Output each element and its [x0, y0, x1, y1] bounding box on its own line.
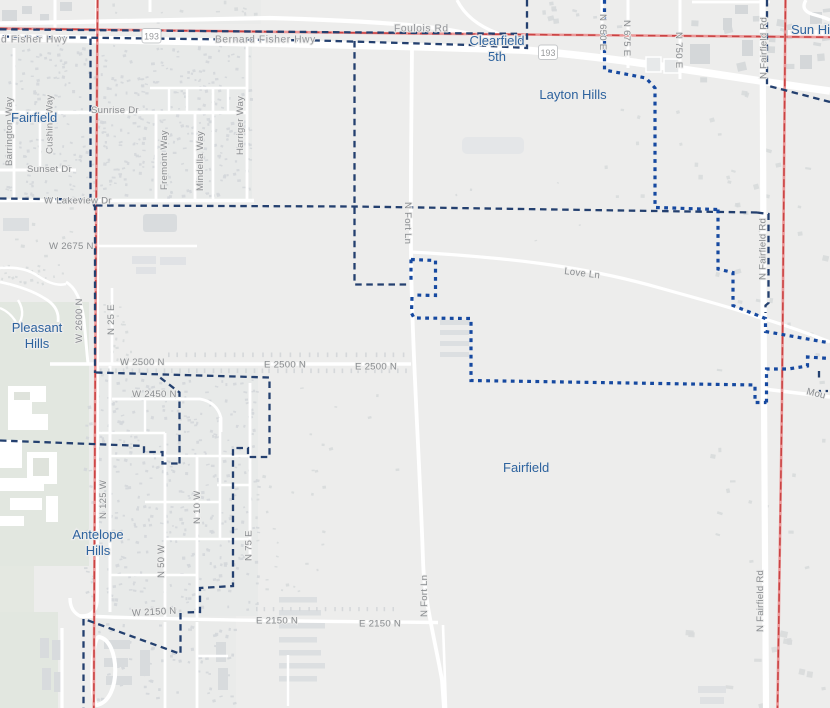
svg-text:N 75 E: N 75 E — [244, 530, 255, 561]
svg-text:Fairfield: Fairfield — [503, 460, 549, 475]
svg-text:Sunset Dr: Sunset Dr — [27, 164, 72, 175]
svg-text:Clearfield: Clearfield — [470, 33, 525, 48]
svg-text:Sunrise Dr: Sunrise Dr — [91, 105, 139, 116]
svg-text:Pleasant: Pleasant — [12, 320, 63, 335]
svg-text:N Fort Ln: N Fort Ln — [402, 202, 413, 244]
svg-text:N Fairfield Rd: N Fairfield Rd — [759, 17, 770, 79]
svg-text:W 2600 N: W 2600 N — [74, 298, 85, 343]
svg-text:Mindella Way: Mindella Way — [195, 131, 206, 191]
svg-text:Barrington Way: Barrington Way — [4, 97, 15, 166]
svg-text:Sun Hill: Sun Hill — [791, 22, 830, 37]
svg-text:E 2150 N: E 2150 N — [359, 619, 401, 630]
svg-text:W Lakeview Dr: W Lakeview Dr — [44, 196, 112, 207]
svg-text:N 10 W: N 10 W — [192, 490, 203, 524]
svg-text:N Fairfield Rd: N Fairfield Rd — [755, 570, 766, 632]
svg-text:Fairfield: Fairfield — [11, 110, 57, 125]
svg-text:Fremont Way: Fremont Way — [159, 130, 170, 190]
svg-text:W 2150 N: W 2150 N — [132, 606, 177, 619]
svg-text:N 25 E: N 25 E — [106, 304, 117, 335]
svg-text:d Fisher Hwy: d Fisher Hwy — [1, 35, 68, 46]
svg-text:Foulois Rd: Foulois Rd — [394, 24, 449, 35]
svg-text:Hills: Hills — [25, 336, 50, 351]
svg-text:N 650 E: N 650 E — [597, 14, 608, 50]
svg-text:Layton Hills: Layton Hills — [539, 87, 607, 102]
svg-text:N 750 E: N 750 E — [673, 32, 684, 68]
svg-text:5th: 5th — [488, 49, 506, 64]
svg-text:N Fairfield Rd: N Fairfield Rd — [758, 218, 769, 280]
svg-text:E 2150 N: E 2150 N — [256, 616, 298, 627]
svg-text:W 2500 N: W 2500 N — [120, 357, 165, 368]
svg-text:E 2500 N: E 2500 N — [264, 360, 306, 371]
svg-text:Harriger Way: Harriger Way — [235, 96, 246, 155]
svg-text:W 2450 N: W 2450 N — [132, 389, 177, 400]
svg-text:N Fort Ln: N Fort Ln — [419, 575, 430, 617]
svg-text:Hills: Hills — [86, 543, 111, 558]
svg-text:N 125 W: N 125 W — [98, 479, 109, 519]
svg-text:193: 193 — [541, 48, 556, 58]
svg-text:N 50 W: N 50 W — [156, 544, 167, 578]
svg-text:Antelope: Antelope — [72, 527, 123, 542]
svg-text:Bernard Fisher Hwy: Bernard Fisher Hwy — [215, 35, 316, 46]
svg-text:E 2500 N: E 2500 N — [355, 362, 397, 373]
svg-text:W 2675 N: W 2675 N — [49, 241, 94, 252]
svg-text:193: 193 — [144, 31, 159, 41]
svg-text:N 675 E: N 675 E — [621, 20, 632, 56]
